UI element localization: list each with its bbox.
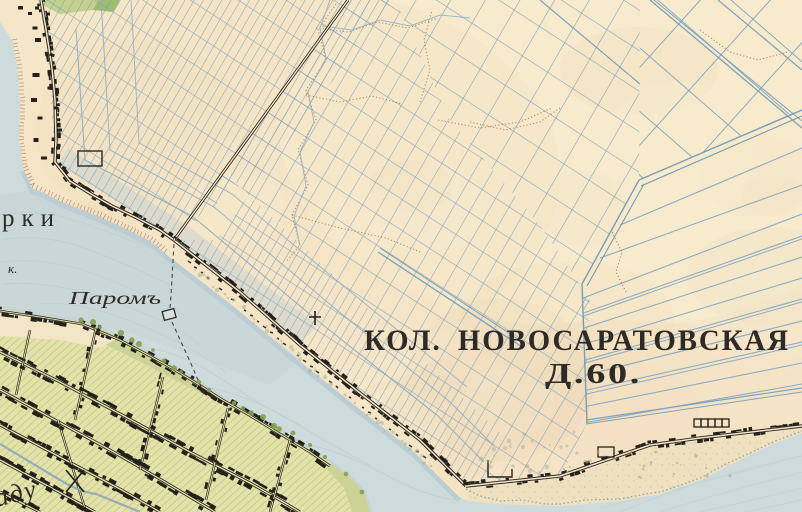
svg-text:Паромъ: Паромъ xyxy=(67,288,161,308)
svg-text:КОЛ. НОВОСАРАТОВСКАЯ: КОЛ. НОВОСАРАТОВСКАЯ xyxy=(364,324,790,357)
svg-text:Д.60.: Д.60. xyxy=(545,358,642,390)
svg-text:рки: рки xyxy=(2,205,61,232)
svg-text:к.: к. xyxy=(8,261,17,276)
